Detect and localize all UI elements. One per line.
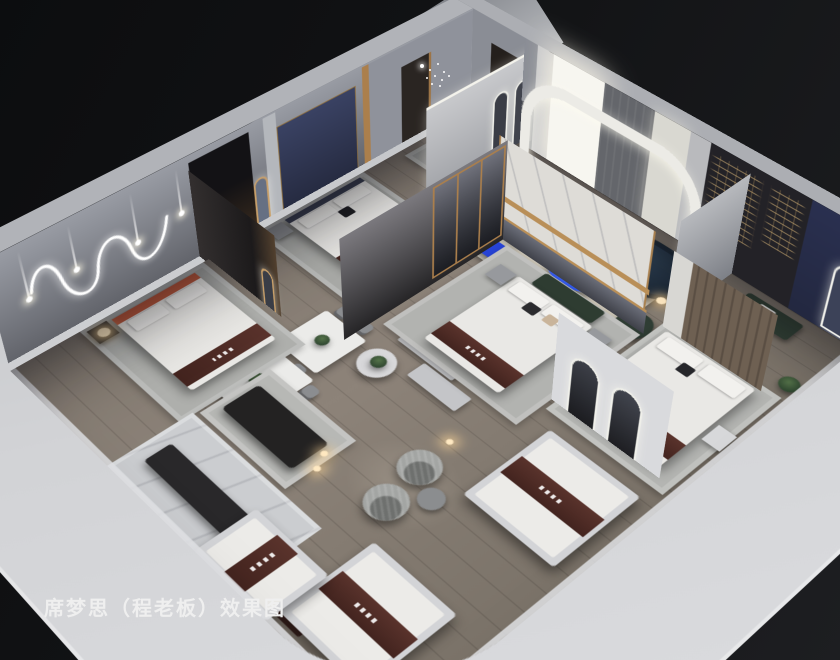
rendering-canvas: 席梦思（程老板）效果图 <box>0 0 840 660</box>
cheval-arch-mirror <box>820 261 840 342</box>
display-bench-b <box>407 363 472 412</box>
dining-chair <box>264 346 288 363</box>
bench-rug <box>200 369 357 489</box>
mattress-runner <box>173 323 272 386</box>
mattress-runner <box>431 321 524 388</box>
round-side-table <box>411 483 452 515</box>
table-plant <box>245 370 269 387</box>
swivel-chair <box>387 442 453 492</box>
dining-table-large <box>202 340 314 421</box>
dining-chair <box>284 362 308 379</box>
mattress-runner <box>318 571 417 659</box>
dining-chair <box>236 334 260 350</box>
dining-chair <box>250 413 275 431</box>
table-plant <box>311 332 333 347</box>
dining-chair <box>213 347 237 364</box>
pillow <box>165 282 208 309</box>
pillow <box>298 204 338 229</box>
dining-chair <box>297 384 321 402</box>
reading-lamp <box>444 438 455 446</box>
nightstand <box>485 264 517 285</box>
dark-daybench <box>222 385 329 470</box>
swivel-chair <box>353 476 420 529</box>
mattress <box>474 438 629 558</box>
dining-chair <box>190 361 214 378</box>
pendant-cord <box>175 169 183 213</box>
caption-title: 席梦思（程老板）效果图 <box>44 592 286 621</box>
mattress-display <box>279 542 457 660</box>
crystal-chandelier <box>420 64 424 68</box>
corner-plant <box>774 373 805 396</box>
throw-pillow <box>521 301 542 316</box>
mattress-runner <box>224 535 298 592</box>
string-lights <box>760 185 807 261</box>
round-display-table <box>348 343 406 384</box>
pillow <box>127 303 171 331</box>
cone-lamp <box>312 464 323 472</box>
nightstand-white <box>701 425 737 452</box>
display-bench-a <box>397 325 474 381</box>
dining-chair <box>274 398 299 416</box>
mattress <box>291 551 445 660</box>
perspective-wrap <box>0 0 840 660</box>
mattress-runner <box>500 456 604 537</box>
cone-lamp <box>319 449 330 457</box>
pillow <box>507 281 550 310</box>
sphere-lamp <box>95 326 113 339</box>
bonsai <box>367 353 391 370</box>
throw-pillow <box>675 362 697 377</box>
throw-pillow <box>337 206 356 218</box>
pillow <box>332 185 372 209</box>
